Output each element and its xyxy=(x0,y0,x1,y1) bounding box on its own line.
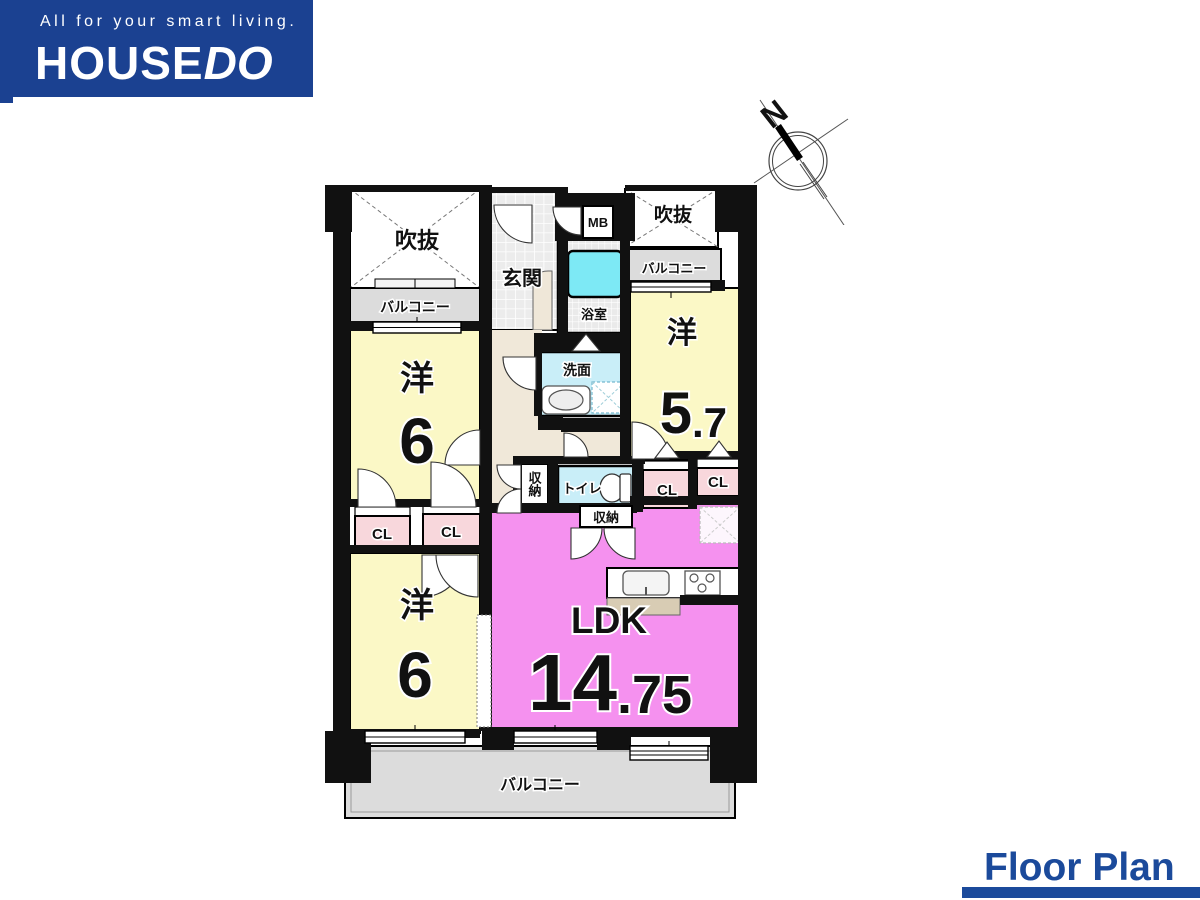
label-western-57-frac: .7 xyxy=(692,399,727,446)
floor-plan: 吹抜 バルコニー 洋 6 CL CL 洋 6 玄関 MB 浴室 洗面 吹抜 バル… xyxy=(325,185,765,830)
label-western-lower-kanji: 洋 xyxy=(400,587,434,625)
logo-tagline: All for your smart living. xyxy=(40,13,297,31)
stove xyxy=(685,571,720,595)
floor-plan-title: Floor Plan xyxy=(984,846,1175,890)
label-bath: 浴室 xyxy=(581,307,607,322)
label-ldk-size-frac: .75 xyxy=(617,665,692,725)
floor-plan-bar xyxy=(962,887,1200,898)
window-void-top xyxy=(375,279,455,288)
fridge-space xyxy=(700,507,740,543)
sliding-partition xyxy=(477,615,491,727)
label-cl-right-1: CL xyxy=(657,482,677,499)
bathtub xyxy=(568,251,622,297)
compass-north-label: N xyxy=(754,93,794,136)
label-storage-hall: 収納 xyxy=(527,471,542,498)
label-balcony-bottom: バルコニー xyxy=(500,776,580,794)
label-ldk-size-main: 14 xyxy=(528,638,617,727)
label-western-57-kanji: 洋 xyxy=(667,317,697,350)
label-cl-right-2: CL xyxy=(708,474,728,491)
label-toilet: トイレ xyxy=(562,481,601,496)
label-western-upper-kanji: 洋 xyxy=(400,360,434,398)
label-entrance: 玄関 xyxy=(502,266,542,290)
window-bottom-step xyxy=(630,741,708,760)
label-balcony-right: バルコニー xyxy=(642,261,707,276)
label-cl-left-2: CL xyxy=(441,524,461,541)
label-washroom: 洗面 xyxy=(563,362,591,378)
brand-do: DO xyxy=(204,37,273,89)
brand-text: HOUSEDO xyxy=(35,36,273,90)
label-storage-ldk: 収納 xyxy=(593,510,619,525)
sink-basin xyxy=(549,390,583,410)
label-void-right: 吹抜 xyxy=(654,203,693,226)
label-western-upper-size: 6 xyxy=(399,405,435,477)
label-cl-left-1: CL xyxy=(372,526,392,543)
toilet-tank xyxy=(620,474,631,502)
housedo-logo: All for your smart living. HOUSEDO xyxy=(0,0,313,97)
logo-tab xyxy=(0,97,13,103)
label-mb: MB xyxy=(588,215,608,230)
brand-house: HOUSE xyxy=(35,37,204,89)
label-western-57-main: 5 xyxy=(660,381,692,446)
page: All for your smart living. HOUSEDO N xyxy=(0,0,1200,900)
label-ldk: LDK xyxy=(571,600,647,641)
label-balcony-left: バルコニー xyxy=(380,299,450,315)
label-western-lower-size: 6 xyxy=(397,639,433,711)
label-void-left: 吹抜 xyxy=(395,228,440,253)
